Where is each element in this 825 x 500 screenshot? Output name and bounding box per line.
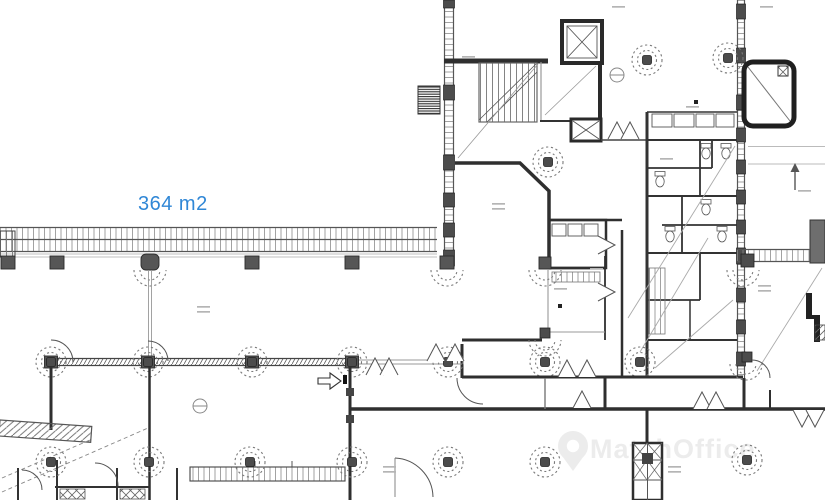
door-swing-marker — [578, 360, 596, 377]
wc-fixture — [721, 144, 731, 160]
column-grid-marker — [134, 270, 166, 286]
door-swing-arc — [22, 470, 42, 490]
window-band-right — [737, 250, 810, 268]
door-swing-marker — [598, 283, 615, 301]
stepped-wall — [806, 293, 825, 342]
wc-fixture — [655, 172, 665, 188]
column-grid-row-top — [1, 254, 759, 286]
toilet-block — [628, 100, 737, 378]
section-marker — [610, 68, 624, 82]
entry-arrow — [318, 373, 347, 389]
door-swing-marker — [707, 392, 725, 409]
door-swing-marker — [573, 391, 591, 408]
light-partition — [149, 270, 152, 358]
column-grid-marker — [533, 147, 563, 177]
door-swing-marker — [621, 122, 639, 139]
bottom-left-area — [0, 367, 433, 500]
mullion-wall-right — [737, 0, 746, 378]
right-annotations — [737, 147, 825, 372]
wc-fixture — [665, 227, 675, 243]
terrace — [744, 62, 794, 126]
column-grid-marker — [632, 45, 662, 75]
door-swing-arc — [457, 378, 483, 404]
floorplan-drawing: MatchOffice 364 m2 — [0, 0, 825, 500]
wc-fixture — [701, 144, 711, 160]
counter — [190, 467, 345, 481]
center-room-details — [540, 224, 615, 332]
bottom-shaft — [633, 443, 662, 500]
ramp-band — [0, 420, 92, 442]
stair-edge-block — [418, 86, 440, 114]
wc-fixture — [701, 200, 711, 216]
column-grid-marker — [431, 270, 463, 286]
center-rooms — [455, 163, 622, 378]
section-marker — [193, 399, 207, 413]
door-swing-arc — [95, 463, 118, 486]
mullion-wall-left — [444, 0, 455, 266]
door-swing-marker — [806, 410, 824, 427]
shaft-secondary — [571, 119, 601, 141]
floorplan-page: MatchOffice 364 m2 — [0, 0, 825, 500]
elevator-shaft — [562, 21, 602, 63]
leader-lines — [628, 146, 735, 368]
watermark-text: MatchOffice — [590, 434, 756, 464]
map-pin-icon — [558, 431, 588, 471]
area-label: 364 m2 — [138, 193, 208, 215]
window-band-left — [0, 227, 437, 257]
door-swing-marker — [427, 344, 445, 361]
wc-fixture — [717, 227, 727, 243]
terrace-icon — [778, 66, 788, 76]
door-swing-marker — [380, 358, 398, 375]
lower-walls — [350, 366, 825, 500]
door-swing-marker — [558, 360, 576, 377]
shaft-block — [810, 220, 825, 263]
north-arrow — [791, 163, 800, 190]
door-swing-arc — [395, 458, 433, 497]
